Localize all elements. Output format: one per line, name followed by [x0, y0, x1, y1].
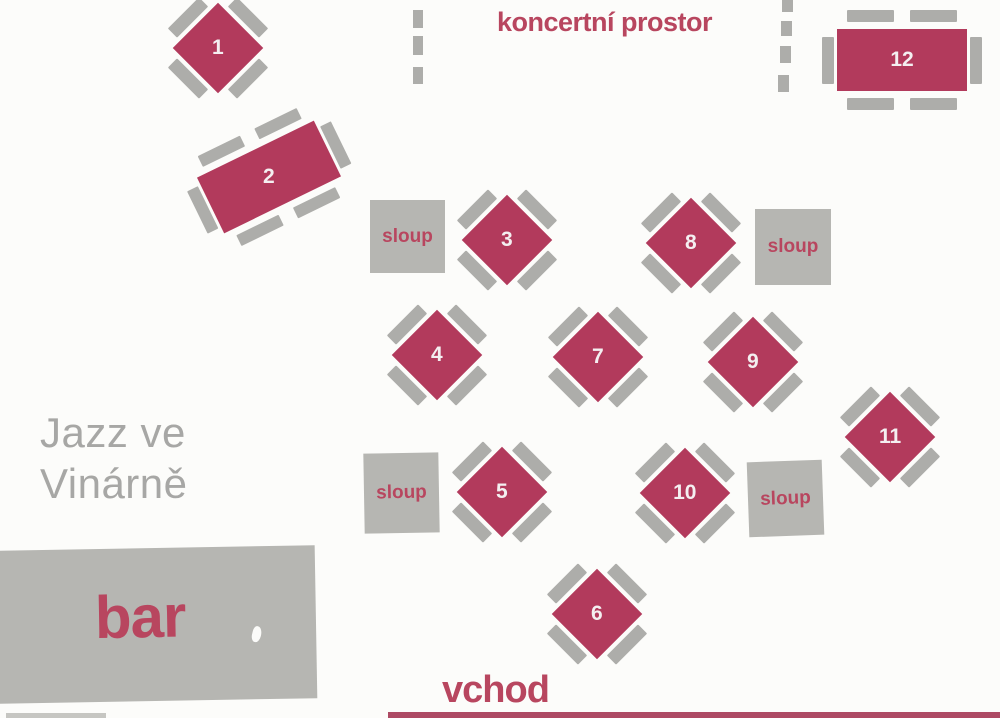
venue-title-line1: Jazz ve — [40, 407, 188, 458]
table-number: 11 — [879, 425, 901, 449]
scan-speck — [250, 625, 263, 643]
table-number: 10 — [673, 481, 696, 505]
chair — [970, 37, 982, 84]
wall-strip-red — [388, 712, 1000, 718]
entrance-label: vchod — [442, 669, 549, 712]
table-number: 6 — [591, 602, 603, 626]
table-top: 12 — [837, 29, 967, 91]
floor-plan: koncertní prostor 1 2 — [0, 0, 1000, 718]
table-number: 2 — [263, 165, 275, 189]
venue-title: Jazz ve Vinárně — [40, 407, 188, 509]
table-number: 8 — [685, 231, 697, 255]
dash — [780, 46, 791, 63]
pillar-1: sloup — [370, 200, 445, 273]
table-number: 7 — [592, 345, 604, 369]
table-number: 9 — [747, 350, 759, 374]
bar-label: bar — [94, 581, 186, 652]
pillar-2: sloup — [755, 209, 831, 285]
pillar-label: sloup — [768, 236, 819, 258]
chair — [847, 98, 894, 110]
table-top: 2 — [197, 121, 341, 234]
table-number: 12 — [890, 48, 913, 72]
dash — [781, 21, 792, 36]
dash — [782, 0, 793, 12]
pillar-label: sloup — [376, 482, 427, 505]
table-number: 5 — [496, 480, 508, 504]
pillar-3: sloup — [363, 452, 439, 533]
concert-area-label: koncertní prostor — [497, 7, 712, 38]
chair — [910, 10, 957, 22]
pillar-4: sloup — [747, 460, 825, 538]
wall-strip-gray — [6, 713, 106, 718]
chair — [847, 10, 894, 22]
dash — [778, 75, 789, 92]
chair — [822, 37, 834, 84]
bar-counter: bar — [0, 545, 317, 704]
venue-title-line2: Vinárně — [40, 458, 188, 509]
pillar-label: sloup — [382, 226, 433, 248]
pillar-label: sloup — [760, 487, 811, 511]
dash — [413, 10, 423, 28]
dash — [413, 36, 423, 55]
chair — [910, 98, 957, 110]
table-number: 1 — [212, 36, 224, 60]
dash — [413, 67, 423, 84]
table-number: 4 — [431, 343, 443, 367]
table-number: 3 — [501, 228, 513, 252]
